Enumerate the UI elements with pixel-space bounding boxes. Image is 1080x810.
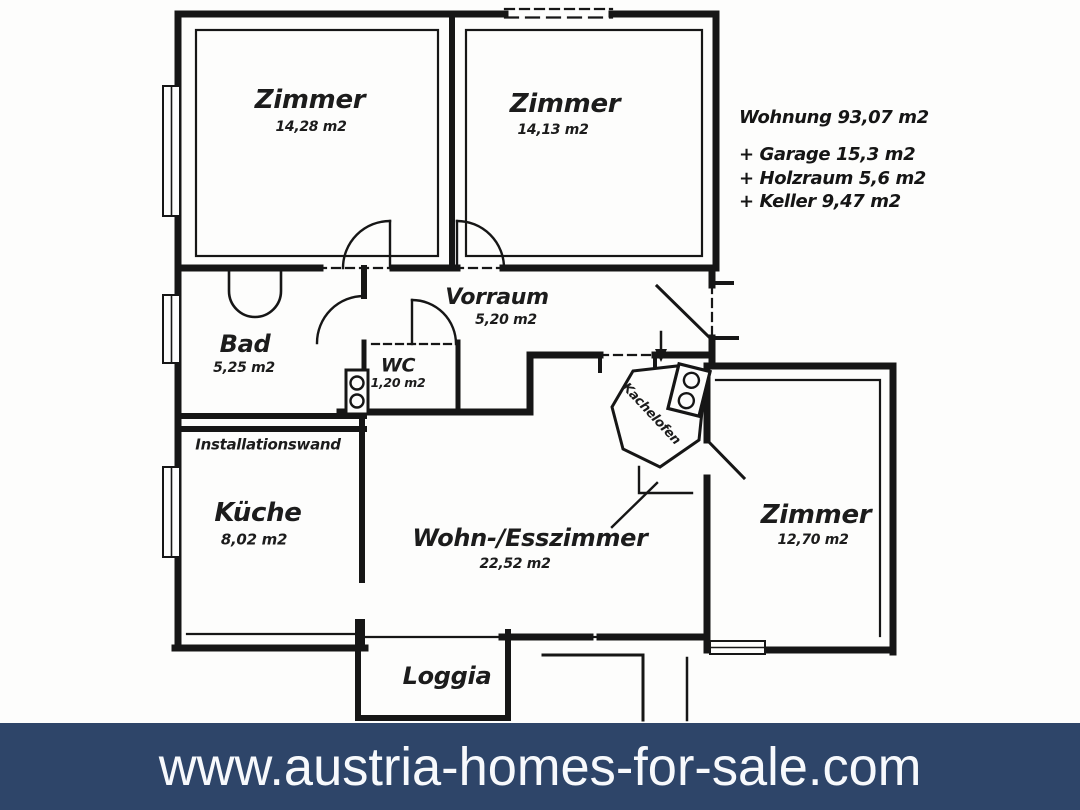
room-area-zimmer-1: 14,28 m2 <box>275 120 346 134</box>
room-name-zimmer-3: Zimmer <box>761 502 872 528</box>
room-name-wohn-esszimmer: Wohn-/Esszimmer <box>412 526 647 550</box>
installationswand-label: Installationswand <box>195 438 340 453</box>
room-area-wohn-esszimmer: 22,52 m2 <box>479 557 550 571</box>
room-area-wc: 1,20 m2 <box>371 377 426 390</box>
room-name-vorraum: Vorraum <box>445 287 549 309</box>
room-area-zimmer-2: 14,13 m2 <box>517 123 588 137</box>
room-area-kueche: 8,02 m2 <box>221 533 287 548</box>
room-name-zimmer-1: Zimmer <box>255 87 366 113</box>
summary-total-area: Wohnung 93,07 m2 <box>739 106 929 130</box>
room-name-loggia: Loggia <box>403 664 492 688</box>
room-name-zimmer-2: Zimmer <box>510 91 621 117</box>
floorplan-area: Zimmer 14,28 m2 Zimmer 14,13 m2 Vorraum … <box>0 0 1080 723</box>
area-summary-block: Wohnung 93,07 m2 + Garage 15,3 m2 + Holz… <box>739 106 929 214</box>
summary-holzraum: + Holzraum 5,6 m2 <box>739 167 929 191</box>
room-area-vorraum: 5,20 m2 <box>475 313 537 327</box>
summary-garage: + Garage 15,3 m2 <box>739 143 929 167</box>
floorplan-page: Zimmer 14,28 m2 Zimmer 14,13 m2 Vorraum … <box>0 0 1080 810</box>
room-area-zimmer-3: 12,70 m2 <box>777 533 848 547</box>
website-banner: www.austria-homes-for-sale.com <box>0 723 1080 810</box>
summary-keller: + Keller 9,47 m2 <box>739 190 929 214</box>
website-url-text: www.austria-homes-for-sale.com <box>159 736 922 798</box>
room-name-wc: WC <box>381 357 415 376</box>
room-name-kueche: Küche <box>214 500 301 526</box>
room-name-bad: Bad <box>220 332 271 356</box>
room-area-bad: 5,25 m2 <box>213 361 275 375</box>
